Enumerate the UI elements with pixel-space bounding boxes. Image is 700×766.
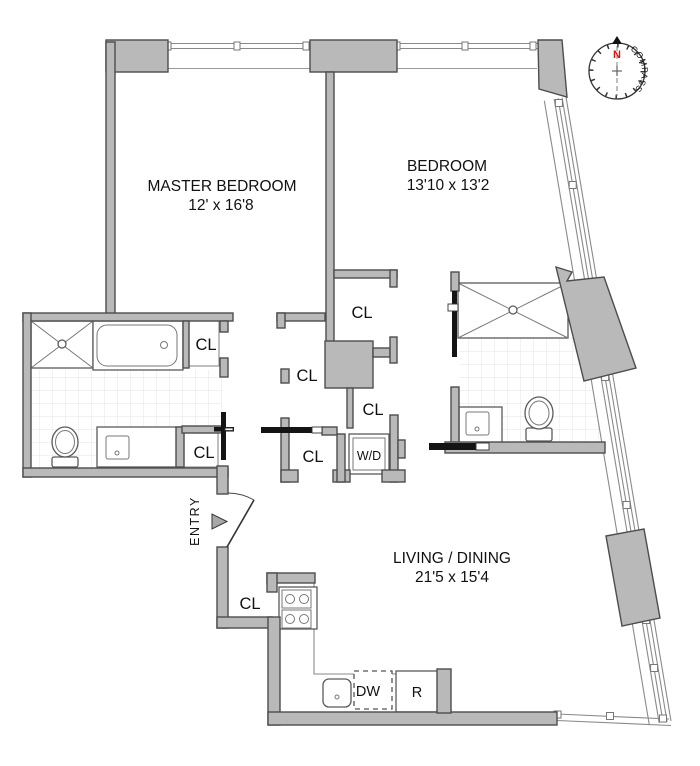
structural-column-lower xyxy=(606,529,660,626)
master-bedroom-dims: 12' x 16'8 xyxy=(188,197,253,214)
wall-segment xyxy=(398,440,405,458)
wall-segment xyxy=(382,470,405,482)
wall-segment xyxy=(217,466,228,494)
wall-segment xyxy=(220,321,228,332)
wall-segment xyxy=(183,321,189,368)
master-vanity xyxy=(97,427,183,467)
dishwasher-label: DW xyxy=(356,684,380,700)
closet-label-kitchen: CL xyxy=(239,595,260,613)
wall-segment xyxy=(538,40,567,97)
bedroom-dims: 13'10 x 13'2 xyxy=(407,177,490,194)
bottom-window-strip xyxy=(554,711,671,726)
second-toilet xyxy=(525,397,553,441)
second-bath-pocket-door xyxy=(429,443,489,450)
wall-segment xyxy=(277,313,285,328)
kitchen-sink xyxy=(323,679,351,707)
wall-segment xyxy=(220,358,228,377)
wall-segment xyxy=(281,369,289,383)
wall-segment xyxy=(390,270,397,287)
wall-segment xyxy=(106,42,115,314)
wall-segment xyxy=(451,387,459,443)
wall-segment xyxy=(334,270,397,278)
washer-dryer-label: W/D xyxy=(357,449,381,463)
wall-segment xyxy=(451,272,459,291)
wall-segment xyxy=(268,617,280,725)
bedroom-name: BEDROOM xyxy=(407,158,487,175)
refrigerator-label: R xyxy=(412,685,422,701)
wall-segment xyxy=(310,40,397,72)
wall-segment xyxy=(390,337,397,363)
compass-north-label: N xyxy=(613,49,621,61)
floor-plan: N COMPASS MASTER BEDROOM 12' x 16'8 BEDR… xyxy=(0,0,700,766)
wall-segment xyxy=(23,313,233,321)
closet-label-bedroom: CL xyxy=(351,304,372,322)
wall-segment xyxy=(217,617,272,628)
wall-segment xyxy=(347,388,353,428)
entry-door xyxy=(227,493,254,547)
second-shower-closet xyxy=(458,283,568,338)
closet-label-master-bath-upper: CL xyxy=(195,336,216,354)
wall-segment xyxy=(23,468,228,477)
second-closet-sliding-door xyxy=(448,291,458,357)
master-bath-tiles xyxy=(31,370,222,425)
closet-label-linen: CL xyxy=(296,367,317,385)
second-vanity xyxy=(459,407,502,443)
floor-plan-drawing: N COMPASS MASTER BEDROOM 12' x 16'8 BEDR… xyxy=(0,0,700,766)
wall-segment xyxy=(322,427,337,435)
wall-segment xyxy=(217,547,228,628)
north-pointer-icon xyxy=(612,36,622,44)
structural-shaft xyxy=(325,341,373,388)
wall-segment xyxy=(437,669,451,713)
closet-label-niche: CL xyxy=(362,401,383,419)
entry-label: ENTRY xyxy=(188,496,202,546)
bathtub xyxy=(93,321,183,370)
compass: N COMPASS xyxy=(589,36,650,99)
master-toilet xyxy=(52,427,78,467)
master-bedroom-name: MASTER BEDROOM xyxy=(148,178,297,195)
wall-segment xyxy=(373,348,390,357)
closet-label-master-bath-lower: CL xyxy=(193,444,214,462)
kitchen-counter-edge xyxy=(314,583,397,674)
wall-segment xyxy=(23,313,31,477)
stove xyxy=(279,587,317,629)
living-dining-dims: 21'5 x 15'4 xyxy=(415,569,489,586)
wall-segment xyxy=(326,72,334,342)
living-dining-name: LIVING / DINING xyxy=(393,550,511,567)
hall-closet-sliding-door xyxy=(261,427,322,433)
master-shower xyxy=(31,321,93,368)
wall-segment xyxy=(281,470,298,482)
wall-segment xyxy=(337,434,345,482)
wall-segment xyxy=(268,712,557,725)
wall-segment xyxy=(267,573,277,592)
entry-arrow-icon xyxy=(212,514,227,529)
closet-label-hall: CL xyxy=(302,448,323,466)
